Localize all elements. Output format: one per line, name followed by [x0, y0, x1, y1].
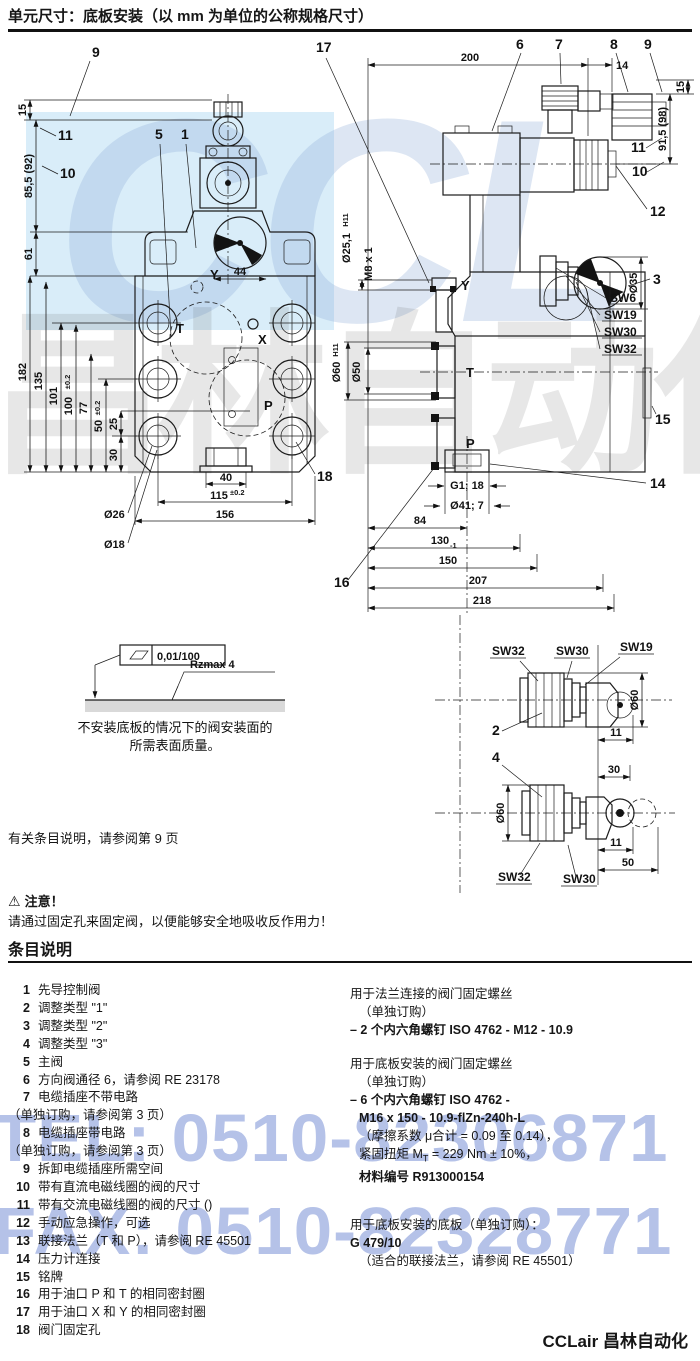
front-view: 44 Y T X P: [17, 39, 429, 551]
dim-dia41-7: Ø41; 7: [450, 500, 484, 512]
dim-50-tol: ±0.2: [93, 401, 102, 416]
item-text: 调整类型 "2": [38, 1018, 107, 1036]
dim-207: 207: [469, 575, 487, 587]
dim-40: 40: [220, 472, 232, 484]
dim-100: 100: [63, 397, 75, 415]
surface-caption-2: 所需表面质量。: [129, 738, 220, 753]
dim-115: 115: [210, 490, 228, 502]
port-Y-side: Y: [461, 278, 470, 293]
dim-dia18: Ø18: [104, 539, 125, 551]
callout-1: 1: [181, 126, 189, 142]
dim-15-side: 15: [675, 81, 687, 93]
dim-84: 84: [414, 515, 427, 527]
item-number: 14: [8, 1251, 30, 1269]
callout-9: 9: [92, 44, 100, 60]
port-T-side: T: [466, 365, 474, 380]
item-number: 1: [8, 982, 30, 1000]
callout-4: 4: [492, 749, 500, 765]
dim-200: 200: [461, 52, 479, 64]
side-view: Y T P 200 14 15: [331, 36, 694, 616]
dim-61: 61: [23, 248, 35, 260]
torque-value: = 229 Nm ± 10%，: [428, 1147, 537, 1161]
list-item: 7电缆插座不带电路: [8, 1089, 344, 1107]
callout-16: 16: [334, 574, 350, 590]
list-item: 1先导控制阀: [8, 982, 344, 1000]
surface-caption-1: 不安装底板的情况下的阀安装面的: [77, 720, 272, 735]
item-text: 联接法兰（T 和 P），请参阅 RE 45501: [38, 1233, 251, 1251]
list-item: 16用于油口 P 和 T 的相同密封圈: [8, 1286, 344, 1304]
dim-m8x1: M8 x 1: [363, 247, 375, 281]
callout-9-side: 9: [644, 36, 652, 52]
item-number: 11: [8, 1197, 30, 1215]
roughness-value: Rzmax 4: [190, 659, 236, 671]
item-text: 拆卸电缆插座所需空间: [38, 1161, 163, 1179]
list-item: 5主阀: [8, 1054, 344, 1072]
item-number: 5: [8, 1054, 30, 1072]
dim-g1-18: G1; 18: [450, 480, 484, 492]
list-item: 10带有直流电磁线圈的阀的尺寸: [8, 1179, 344, 1197]
list-item: 18阀门固定孔: [8, 1322, 344, 1340]
dim-50: 50: [93, 420, 105, 432]
dim-130: 130: [431, 535, 449, 547]
item-text: 用于油口 P 和 T 的相同密封圈: [38, 1286, 205, 1304]
dim-dia50: Ø50: [351, 362, 363, 383]
label-sw30-a: SW30: [556, 644, 589, 658]
torque-prefix: 紧固扭矩 M: [359, 1147, 423, 1161]
item-number: 2: [8, 1000, 30, 1018]
item-number: 9: [8, 1161, 30, 1179]
item-number: 12: [8, 1215, 30, 1233]
list-item: 9拆卸电缆插座所需空间: [8, 1161, 344, 1179]
dim-dia25-1: Ø25,1: [341, 233, 353, 263]
dim-85-5: 85,5 (92): [23, 154, 35, 198]
item-text: 方向阀通径 6，请参阅 RE 23178: [38, 1072, 220, 1090]
item-text: 调整类型 "1": [38, 1000, 107, 1018]
page-title: 单元尺寸：底板安装（以 mm 为单位的公称规格尺寸）: [8, 5, 373, 26]
dim-182: 182: [17, 363, 29, 381]
item-text: 铭牌: [38, 1269, 63, 1287]
dim-25: 25: [108, 418, 120, 430]
warning-block: ⚠注意！ 请通过固定孔来固定阀，以便能够安全地吸收反作用力！: [8, 891, 333, 932]
callout-11-side: 11: [631, 139, 646, 155]
plate-screws-line4: 紧固扭矩 MT = 229 Nm ± 10%，: [350, 1145, 695, 1168]
warning-title: 注意！: [25, 894, 64, 909]
flange-screws-sub: （单独订购）: [350, 1003, 695, 1021]
dim-91-5: 91,5 (98): [657, 107, 669, 151]
callout-6: 6: [516, 36, 524, 52]
brand-logo: CCLair 昌林自动化: [543, 1327, 688, 1352]
item-number: 15: [8, 1269, 30, 1287]
callout-5: 5: [155, 126, 163, 142]
item-note: （单独订购，请参阅第 3 页）: [8, 1143, 344, 1161]
plate-screws-material: 材料编号 R913000154: [350, 1168, 695, 1186]
item-text: 电缆插座不带电路: [38, 1089, 138, 1107]
port-P-front: P: [264, 398, 273, 413]
list-item: 15铭牌: [8, 1269, 344, 1287]
item-text: 主阀: [38, 1054, 63, 1072]
item-text: 调整类型 "3": [38, 1036, 107, 1054]
dim-15: 15: [17, 104, 29, 116]
callout-14: 14: [650, 475, 666, 491]
item-number: 3: [8, 1018, 30, 1036]
dim-115-tol: ±0.2: [230, 488, 245, 497]
callout-3: 3: [653, 271, 661, 287]
dim-30-b: 30: [608, 764, 620, 776]
plate-screws-sub: （单独订购）: [350, 1073, 695, 1091]
dim-dia60-b: Ø60: [495, 803, 507, 824]
list-item: 8电缆插座带电路: [8, 1125, 344, 1143]
callout-18: 18: [317, 468, 333, 484]
item-number: 8: [8, 1125, 30, 1143]
dim-dia60: Ø60: [331, 362, 343, 383]
dim-dia25-1-tol: H11: [341, 213, 350, 226]
warning-icon: ⚠: [8, 893, 21, 909]
callout-2: 2: [492, 722, 500, 738]
detail-type1: SW32 SW30 SW19 Ø60 11 2: [435, 640, 672, 744]
label-sw32-b: SW32: [498, 870, 531, 884]
warning-text: 请通过固定孔来固定阀，以便能够安全地吸收反作用力！: [8, 912, 333, 932]
item-number: 18: [8, 1322, 30, 1340]
list-item: 13联接法兰（T 和 P），请参阅 RE 45501: [8, 1233, 344, 1251]
list-item: 2调整类型 "1": [8, 1000, 344, 1018]
dim-130-tol: -1: [450, 541, 457, 550]
adjustment-detail-drawings: SW32 SW30 SW19 Ø60 11 2: [380, 615, 700, 893]
item-text: 压力计连接: [38, 1251, 101, 1269]
label-sw32-a: SW32: [492, 644, 525, 658]
list-item: 11带有交流电磁线圈的阀的尺寸 (): [8, 1197, 344, 1215]
callout-11: 11: [58, 127, 73, 143]
label-sw19: SW19: [604, 308, 637, 322]
item-number: 13: [8, 1233, 30, 1251]
item-note: （单独订购，请参阅第 3 页）: [8, 1107, 344, 1125]
item-number: 17: [8, 1304, 30, 1322]
plate-screws-line1: – 6 个内六角螺钉 ISO 4762 -: [350, 1091, 695, 1109]
dim-100-tol: ±0.2: [63, 375, 72, 390]
callout-8: 8: [610, 36, 618, 52]
port-T-front: T: [176, 321, 184, 336]
dim-11-b: 11: [610, 837, 622, 849]
callout-10-side: 10: [632, 163, 648, 179]
callout-17: 17: [316, 39, 332, 55]
dim-150: 150: [439, 555, 457, 567]
item-text: 电缆插座带电路: [38, 1125, 126, 1143]
item-text: 用于油口 X 和 Y 的相同密封圈: [38, 1304, 206, 1322]
flange-screws-title: 用于法兰连接的阀门固定螺丝: [350, 985, 695, 1003]
subplate-note: （适合的联接法兰，请参阅 RE 45501）: [350, 1252, 695, 1270]
dim-50-b: 50: [622, 857, 634, 869]
label-sw30-b: SW30: [563, 872, 596, 886]
label-sw30: SW30: [604, 325, 637, 339]
label-sw19-a: SW19: [620, 640, 653, 654]
dim-dia60-tol: H11: [331, 343, 340, 356]
item-text: 先导控制阀: [38, 982, 101, 1000]
item-number: 4: [8, 1036, 30, 1054]
port-Y-front: Y: [210, 267, 219, 282]
adjustment-knob-front: [214, 217, 266, 269]
datasheet-page: CCL 昌林自动化 TEL: 0510-82306871 FAX: 0510-8…: [0, 0, 700, 1361]
surface-finish-note: 0,01/100 Rzmax 4 不安装底板的情况下的阀安装面的 所需表面质量。: [60, 640, 360, 765]
list-item: 17用于油口 X 和 Y 的相同密封圈: [8, 1304, 344, 1322]
dimension-drawing: 44 Y T X P: [0, 36, 700, 613]
section-heading: 条目说明: [8, 936, 72, 960]
list-item: 14压力计连接: [8, 1251, 344, 1269]
detail-type3: 4 Ø60 11 50 SW32 SW30: [435, 749, 675, 886]
list-item: 6方向阀通径 6，请参阅 RE 23178: [8, 1072, 344, 1090]
plate-screws-line2: M16 x 150 - 10.9-flZn-240h-L: [350, 1109, 695, 1127]
item-list: 1先导控制阀 2调整类型 "1" 3调整类型 "2" 4调整类型 "3" 5主阀…: [8, 982, 344, 1340]
item-number: 16: [8, 1286, 30, 1304]
subplate-model: G 479/10: [350, 1234, 695, 1252]
dim-77: 77: [78, 402, 90, 414]
list-item: 12手动应急操作，可选: [8, 1215, 344, 1233]
dim-218: 218: [473, 595, 491, 607]
list-item: 3调整类型 "2": [8, 1018, 344, 1036]
subplate-title: 用于底板安装的底板（单独订购）：: [350, 1216, 695, 1234]
dim-dia60-a: Ø60: [629, 690, 641, 711]
dim-30: 30: [108, 449, 120, 461]
item-text: 阀门固定孔: [38, 1322, 101, 1340]
item-text: 手动应急操作，可选: [38, 1215, 151, 1233]
flange-screws-item: – 2 个内六角螺钉 ISO 4762 - M12 - 10.9: [350, 1021, 695, 1039]
item-text: 带有直流电磁线圈的阀的尺寸: [38, 1179, 201, 1197]
dim-101: 101: [48, 387, 60, 405]
callout-10: 10: [60, 165, 76, 181]
dim-dia26: Ø26: [104, 509, 125, 521]
item-text: 带有交流电磁线圈的阀的尺寸 (): [38, 1197, 212, 1215]
item-number: 7: [8, 1089, 30, 1107]
dim-11-a: 11: [610, 727, 622, 739]
reference-note: 有关条目说明，请参阅第 9 页: [8, 828, 178, 847]
plate-screws-title: 用于底板安装的阀门固定螺丝: [350, 1055, 695, 1073]
dim-156: 156: [216, 509, 234, 521]
title-rule: [8, 29, 692, 32]
section-rule: [8, 961, 692, 963]
label-sw32: SW32: [604, 342, 637, 356]
plate-screws-line3: （摩擦系数 μ合计 = 0.09 至 0.14），: [350, 1127, 695, 1145]
fixing-screws-column: 用于法兰连接的阀门固定螺丝 （单独订购） – 2 个内六角螺钉 ISO 4762…: [350, 985, 695, 1270]
item-number: 6: [8, 1072, 30, 1090]
callout-12: 12: [650, 203, 666, 219]
port-X-front: X: [258, 332, 267, 347]
list-item: 4调整类型 "3": [8, 1036, 344, 1054]
callout-7: 7: [555, 36, 563, 52]
callout-15: 15: [655, 411, 671, 427]
dim-14: 14: [616, 60, 629, 72]
label-sw6: SW6: [610, 291, 636, 305]
item-number: 10: [8, 1179, 30, 1197]
dim-135: 135: [33, 372, 45, 390]
